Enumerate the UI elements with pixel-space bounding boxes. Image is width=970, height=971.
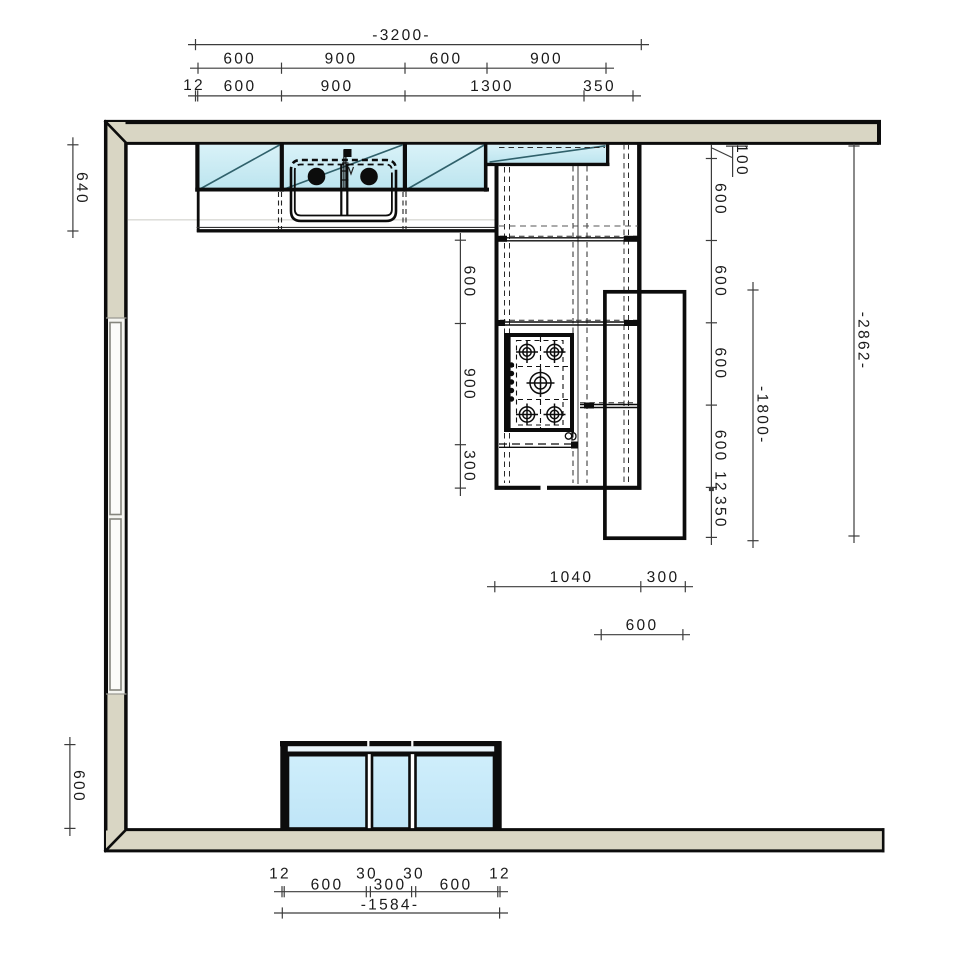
svg-text:600: 600: [712, 348, 729, 381]
svg-text:900: 900: [530, 51, 563, 68]
svg-text:-1800-: -1800-: [753, 386, 770, 445]
svg-text:300: 300: [647, 569, 680, 586]
svg-text:-3200-: -3200-: [372, 27, 431, 44]
svg-text:350: 350: [583, 78, 616, 95]
svg-text:600: 600: [311, 877, 344, 894]
svg-text:-1584-: -1584-: [361, 897, 420, 914]
svg-text:-2862-: -2862-: [854, 312, 871, 371]
svg-text:600: 600: [712, 265, 729, 298]
svg-text:100: 100: [733, 144, 750, 177]
svg-text:640: 640: [73, 172, 90, 205]
svg-text:1040: 1040: [550, 569, 594, 586]
svg-text:12: 12: [712, 471, 729, 493]
svg-text:12: 12: [183, 77, 205, 94]
svg-text:600: 600: [440, 877, 473, 894]
svg-text:600: 600: [461, 266, 478, 299]
svg-text:300: 300: [461, 450, 478, 483]
svg-text:600: 600: [712, 183, 729, 216]
svg-text:350: 350: [712, 496, 729, 529]
svg-text:900: 900: [325, 51, 358, 68]
svg-text:1300: 1300: [470, 78, 514, 95]
svg-text:300: 300: [374, 877, 407, 894]
svg-text:600: 600: [224, 78, 257, 95]
svg-text:600: 600: [712, 430, 729, 463]
svg-text:600: 600: [70, 770, 87, 803]
svg-text:600: 600: [626, 617, 659, 634]
svg-text:12: 12: [489, 866, 511, 883]
svg-text:900: 900: [461, 368, 478, 401]
svg-text:600: 600: [223, 51, 256, 68]
svg-text:600: 600: [430, 51, 463, 68]
svg-text:12: 12: [269, 866, 291, 883]
svg-text:900: 900: [321, 78, 354, 95]
